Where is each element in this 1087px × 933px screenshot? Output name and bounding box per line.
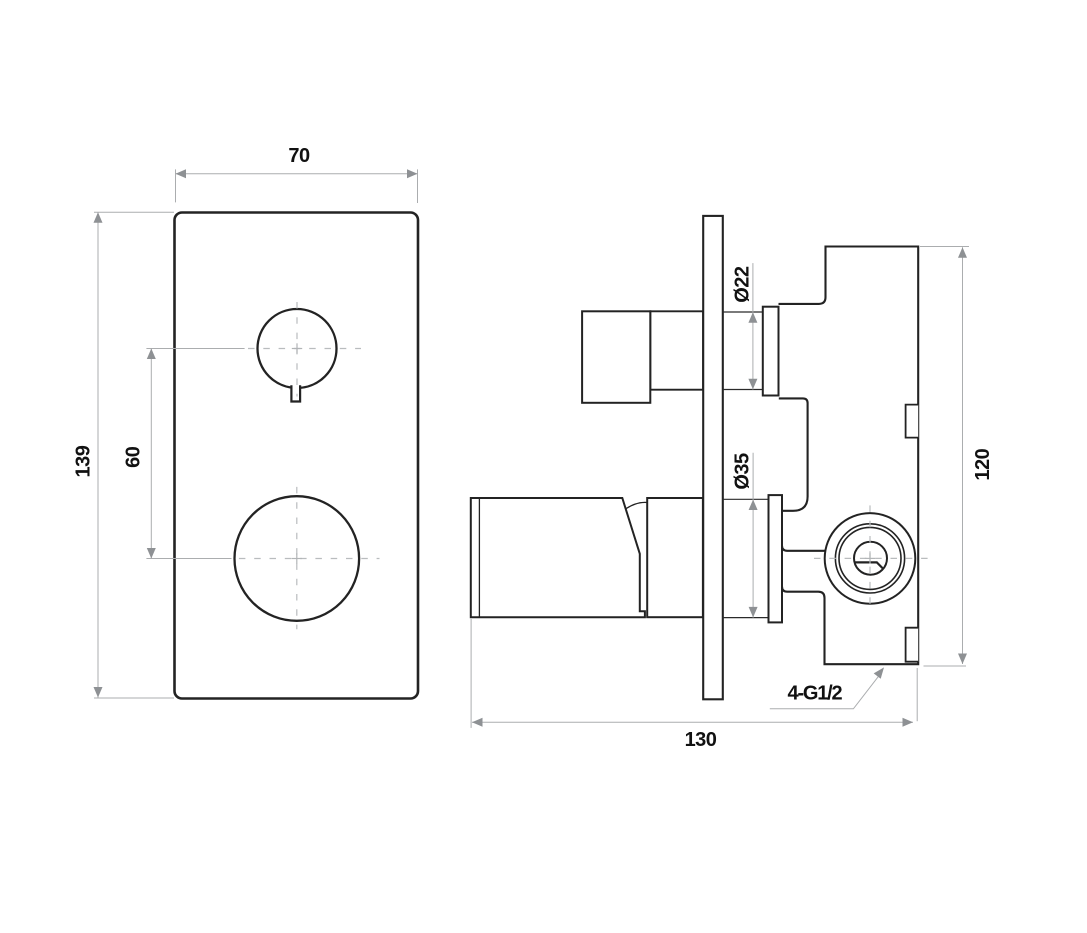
svg-text:Ø35: Ø35 (731, 453, 753, 490)
svg-text:130: 130 (685, 729, 717, 751)
svg-text:139: 139 (72, 445, 94, 477)
svg-text:60: 60 (123, 446, 145, 468)
svg-text:70: 70 (288, 145, 310, 167)
svg-text:120: 120 (972, 448, 994, 480)
svg-text:Ø22: Ø22 (731, 266, 753, 303)
svg-text:4-G1/2: 4-G1/2 (788, 683, 843, 705)
